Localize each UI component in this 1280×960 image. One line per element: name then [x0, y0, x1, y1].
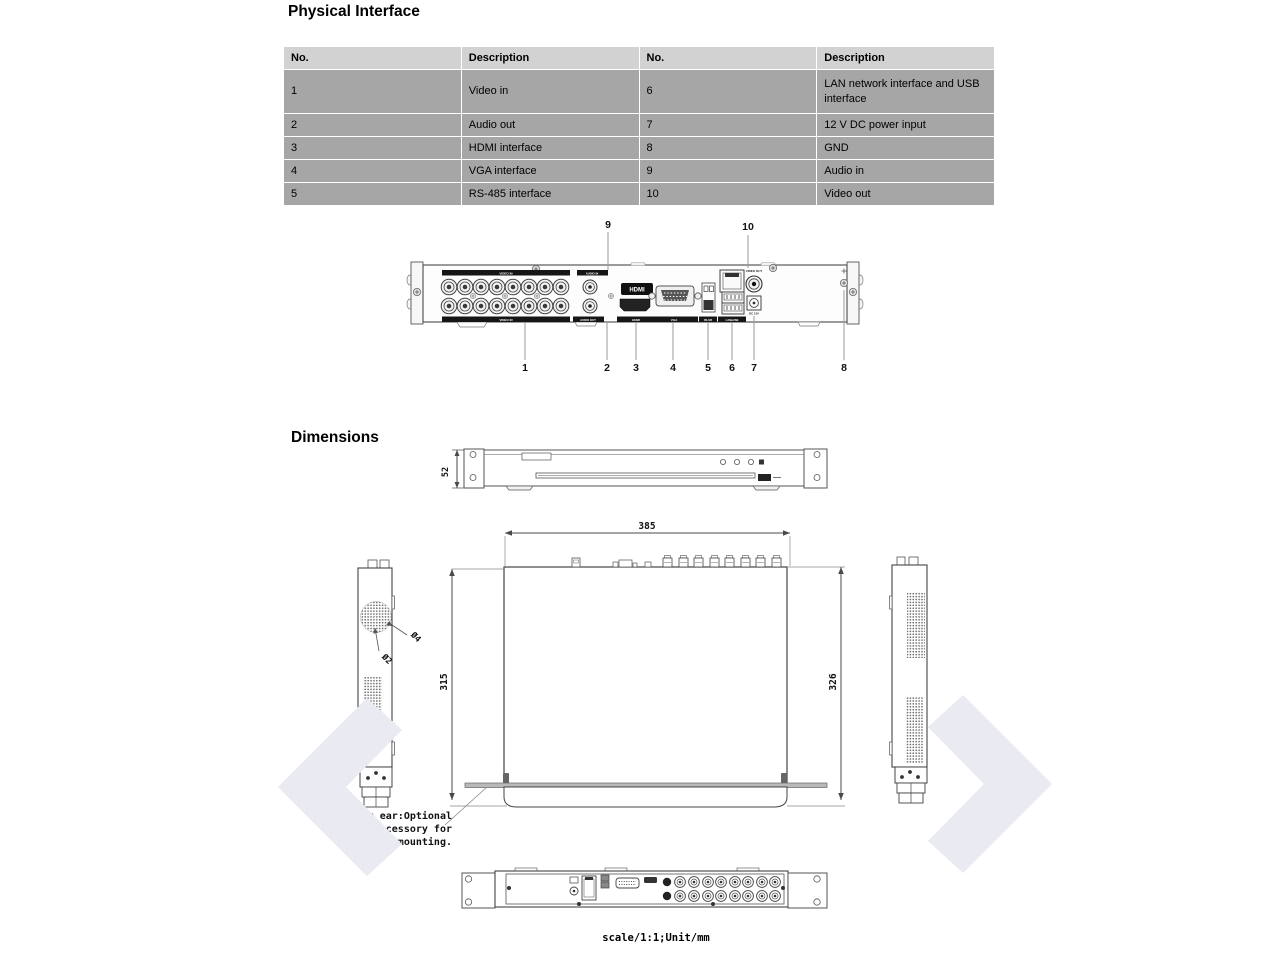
physical-interface-table: No. Description No. Description 1 Video … [283, 46, 995, 206]
cell-desc: Video in [461, 70, 639, 114]
svg-text:VIDEO IN: VIDEO IN [499, 318, 512, 322]
scale-note: scale/1:1;Unit/mm [456, 932, 856, 944]
cell-no: 8 [639, 137, 817, 160]
svg-text:DC 12V: DC 12V [749, 312, 759, 316]
cell-desc: HDMI interface [461, 137, 639, 160]
rear-view-drawing [455, 860, 835, 915]
svg-text:326: 326 [828, 673, 839, 690]
svg-text:5: 5 [705, 362, 711, 374]
svg-text:HDMI: HDMI [632, 318, 640, 322]
height-dim-label: 52 [441, 467, 451, 477]
svg-text:6: 6 [729, 362, 735, 374]
svg-text:2: 2 [604, 362, 610, 374]
svg-text:AUDIO OUT: AUDIO OUT [580, 318, 596, 322]
rear-panel-diagram: VIDEO IN VIDEO IN AUDIO IN AUDIO OUT HDM… [405, 212, 865, 377]
cell-no: 4 [284, 160, 462, 183]
lan-usb-ports: LAN&USB [718, 270, 746, 322]
top-and-side-views-drawing: 385 315 [335, 520, 945, 850]
fan-vent [361, 602, 392, 633]
col-header: No. [284, 47, 462, 70]
svg-text:7: 7 [751, 362, 757, 374]
side-vent-grid [906, 697, 923, 763]
top-view [465, 556, 827, 808]
cell-desc: VGA interface [461, 160, 639, 183]
cell-no: 5 [284, 183, 462, 206]
svg-text:8: 8 [841, 362, 847, 374]
hole-large-label: Ø4 [408, 629, 424, 645]
dimensions-heading: Dimensions [291, 429, 379, 447]
chevron-left-icon [278, 698, 402, 876]
side-vent-grid [907, 592, 925, 658]
table-row: 4 VGA interface 9 Audio in [284, 160, 995, 183]
front-view-drawing: 52 [440, 443, 835, 495]
svg-text:AUDIO IN: AUDIO IN [586, 271, 599, 275]
table-row: 3 HDMI interface 8 GND [284, 137, 995, 160]
cell-no: 7 [639, 114, 817, 137]
svg-text:9: 9 [605, 219, 611, 231]
table-row: 1 Video in 6 LAN network interface and U… [284, 70, 995, 114]
cell-desc: GND [817, 137, 995, 160]
svg-text:10: 10 [742, 221, 754, 233]
cell-no: 9 [639, 160, 817, 183]
right-side-view [890, 557, 928, 803]
carousel-prev-arrow[interactable] [270, 698, 402, 876]
front-panel [464, 449, 827, 490]
svg-text:3: 3 [633, 362, 639, 374]
chevron-right-icon [928, 695, 1052, 873]
body-depth-dimension: 315 [439, 569, 507, 806]
svg-text:LAN&USB: LAN&USB [726, 318, 739, 322]
vga-port: VGA [649, 286, 701, 322]
total-depth-dimension: 326 [787, 567, 845, 806]
svg-text:RS-485: RS-485 [704, 319, 713, 322]
spec-page: Physical Interface No. Description No. D… [0, 0, 1280, 960]
cell-no: 10 [639, 183, 817, 206]
col-header: No. [639, 47, 817, 70]
svg-text:VIDEO IN: VIDEO IN [499, 271, 512, 275]
cell-desc: Audio in [817, 160, 995, 183]
svg-text:1: 1 [522, 362, 528, 374]
svg-text:4: 4 [670, 362, 676, 374]
table-row: 2 Audio out 7 12 V DC power input [284, 114, 995, 137]
cell-desc: 12 V DC power input [817, 114, 995, 137]
svg-text:VGA: VGA [671, 318, 678, 322]
cell-desc: RS-485 interface [461, 183, 639, 206]
cell-no: 6 [639, 70, 817, 114]
carousel-next-arrow[interactable] [928, 695, 1060, 873]
cell-no: 1 [284, 70, 462, 114]
cell-desc: Video out [817, 183, 995, 206]
col-header: Description [461, 47, 639, 70]
col-header: Description [817, 47, 995, 70]
svg-text:VIDEO OUT: VIDEO OUT [746, 269, 763, 273]
rear-view-body [462, 868, 827, 908]
cell-desc: LAN network interface and USB interface [817, 70, 995, 114]
cell-no: 2 [284, 114, 462, 137]
physical-interface-heading: Physical Interface [288, 3, 420, 21]
table-row: 5 RS-485 interface 10 Video out [284, 183, 995, 206]
cell-no: 3 [284, 137, 462, 160]
table-header-row: No. Description No. Description [284, 47, 995, 70]
cell-desc: Audio out [461, 114, 639, 137]
svg-text:315: 315 [439, 673, 450, 690]
svg-text:HDMI: HDMI [629, 288, 645, 294]
svg-text:385: 385 [638, 521, 655, 532]
